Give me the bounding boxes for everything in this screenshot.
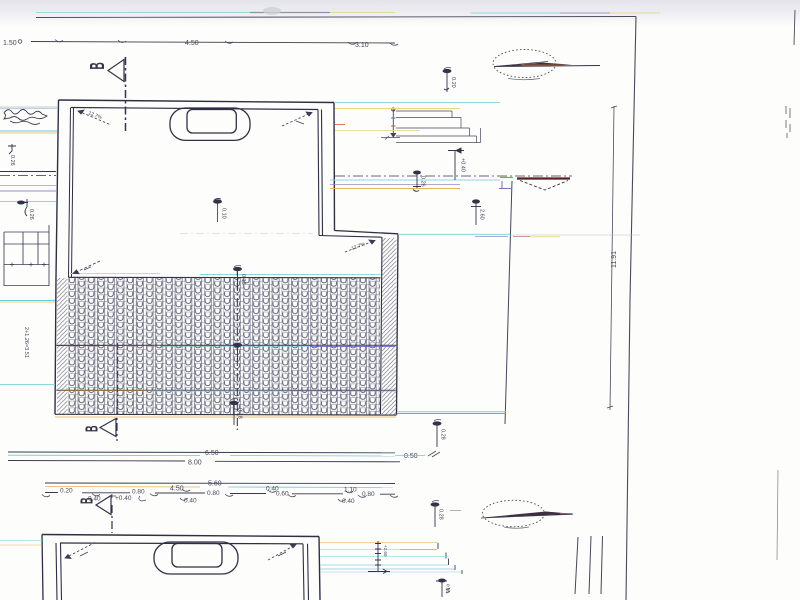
svg-text:0.28: 0.28 [438,509,444,520]
svg-text:8.00: 8.00 [188,460,202,467]
svg-text:1.10: 1.10 [344,487,357,494]
svg-text:0.40: 0.40 [184,498,197,505]
svg-text:0.26: 0.26 [9,155,15,166]
svg-text:B: B [82,425,101,432]
svg-text:B: B [88,62,110,69]
svg-text:11.91: 11.91 [611,251,618,268]
svg-text:0.20: 0.20 [450,77,456,88]
svg-text:0.26: 0.26 [420,176,426,187]
svg-text:0.28: 0.28 [440,429,446,440]
svg-text:0.40: 0.40 [342,498,355,505]
svg-text:1.50: 1.50 [3,40,17,47]
svg-text:3.10: 3.10 [355,42,369,49]
svg-text:0.80: 0.80 [207,490,220,497]
svg-text:0.50: 0.50 [404,453,418,460]
svg-text:0.40: 0.40 [88,496,101,503]
svg-text:6.50: 6.50 [205,450,219,457]
svg-text:2+1.26=3.51: 2+1.26=3.51 [23,327,29,358]
svg-text:0.10: 0.10 [221,208,227,219]
svg-text:5.60: 5.60 [208,481,222,488]
svg-text:0.80: 0.80 [132,489,145,496]
svg-text:4.50: 4.50 [185,40,199,47]
svg-text:0.26: 0.26 [28,209,34,220]
svg-text:0.18: 0.18 [237,408,243,419]
svg-text:+0.40: +0.40 [460,158,466,172]
svg-text:0.60: 0.60 [276,491,289,498]
svg-text:4.50: 4.50 [170,486,184,493]
svg-text:+0.40: +0.40 [115,495,132,502]
svg-text:2.60: 2.60 [479,209,485,220]
svg-text:+2.60: +2.60 [383,545,388,557]
svg-text:0.20: 0.20 [446,584,451,593]
svg-text:0.18: 0.18 [240,274,246,285]
svg-text:0.80: 0.80 [362,491,375,498]
svg-text:0.20: 0.20 [60,488,73,495]
